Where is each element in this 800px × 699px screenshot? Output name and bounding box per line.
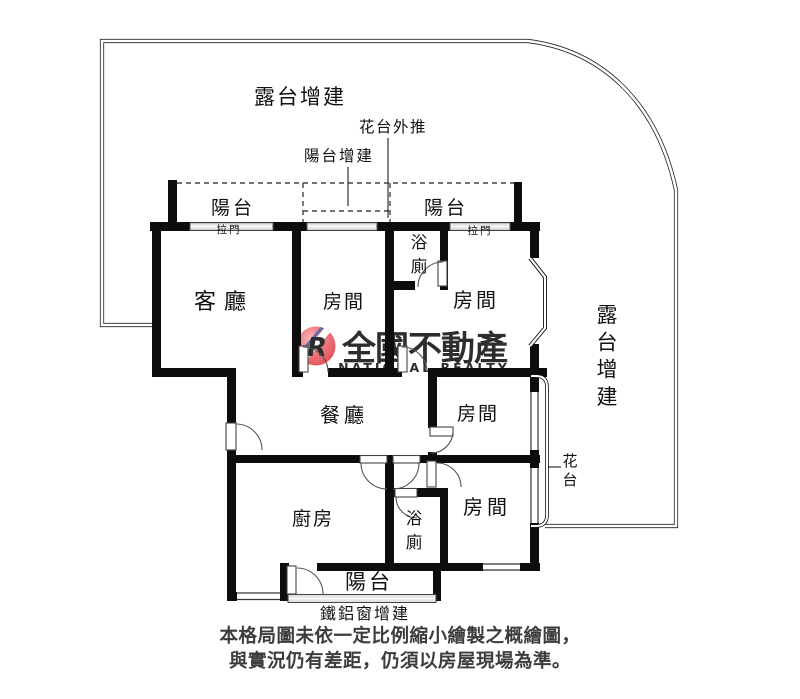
bedroom-top-right-label: 房間: [453, 288, 499, 312]
dining-room-label: 餐廳: [320, 403, 368, 427]
bedroom-bottom-right-door: [427, 461, 461, 487]
flower-bed-label: 花台: [562, 452, 577, 489]
bedroom-bottom-right-label: 房間: [463, 495, 511, 519]
floor-plan-svg: R 全國不動產 NATIONAL REALTY: [0, 0, 800, 699]
living-room-label: 客廳: [194, 290, 254, 315]
balcony-top-left-label: 陽台: [211, 197, 255, 219]
terrace-right-label: 露台增建: [597, 303, 618, 409]
sliding-window-middle: [307, 223, 377, 231]
sliding-door-left-label: 拉門: [217, 223, 242, 236]
entry-door: [226, 423, 262, 450]
window-room3-right: [530, 392, 540, 450]
window-kitchen-bottom: [237, 592, 280, 602]
flower-push-label: 花台外推: [359, 118, 427, 136]
balcony-addition-label: 陽台增建: [304, 147, 374, 165]
kitchen-label: 廚房: [292, 507, 334, 530]
walls: [150, 180, 547, 601]
iron-window-label: 鐵鋁窗增建: [320, 604, 410, 623]
kitchen-door: [360, 456, 387, 490]
bedroom-middle-right-label: 房間: [457, 403, 499, 425]
bedroom-top-middle-label: 房間: [323, 291, 365, 313]
bathroom-top-label: 浴廁: [411, 233, 428, 276]
disclaimer: 本格局圖未依一定比例縮小繪製之概繪圖， 與實況仍有差距，仍須以房屋現場為準。: [219, 625, 580, 672]
sliding-door-right-label: 拉門: [468, 224, 493, 237]
balcony-top-right-label: 陽台: [424, 197, 468, 219]
disclaimer-line2: 與實況仍有差距，仍須以房屋現場為準。: [229, 650, 571, 672]
hallway-door: [393, 456, 420, 490]
window-room4-bottom: [483, 563, 520, 572]
balcony-bottom-label: 陽台: [345, 570, 393, 594]
bathroom-bottom-label: 浴廁: [406, 509, 423, 552]
floor-plan-image: R 全國不動產 NATIONAL REALTY: [0, 0, 800, 699]
bay-window: [530, 258, 545, 346]
disclaimer-line1: 本格局圖未依一定比例縮小繪製之概繪圖，: [219, 625, 580, 647]
iron-aluminum-window: [288, 595, 436, 603]
terrace-top-label: 露台增建: [254, 85, 346, 109]
bedroom-middle-right-door: [430, 427, 453, 453]
window-room4-right: [530, 468, 540, 523]
